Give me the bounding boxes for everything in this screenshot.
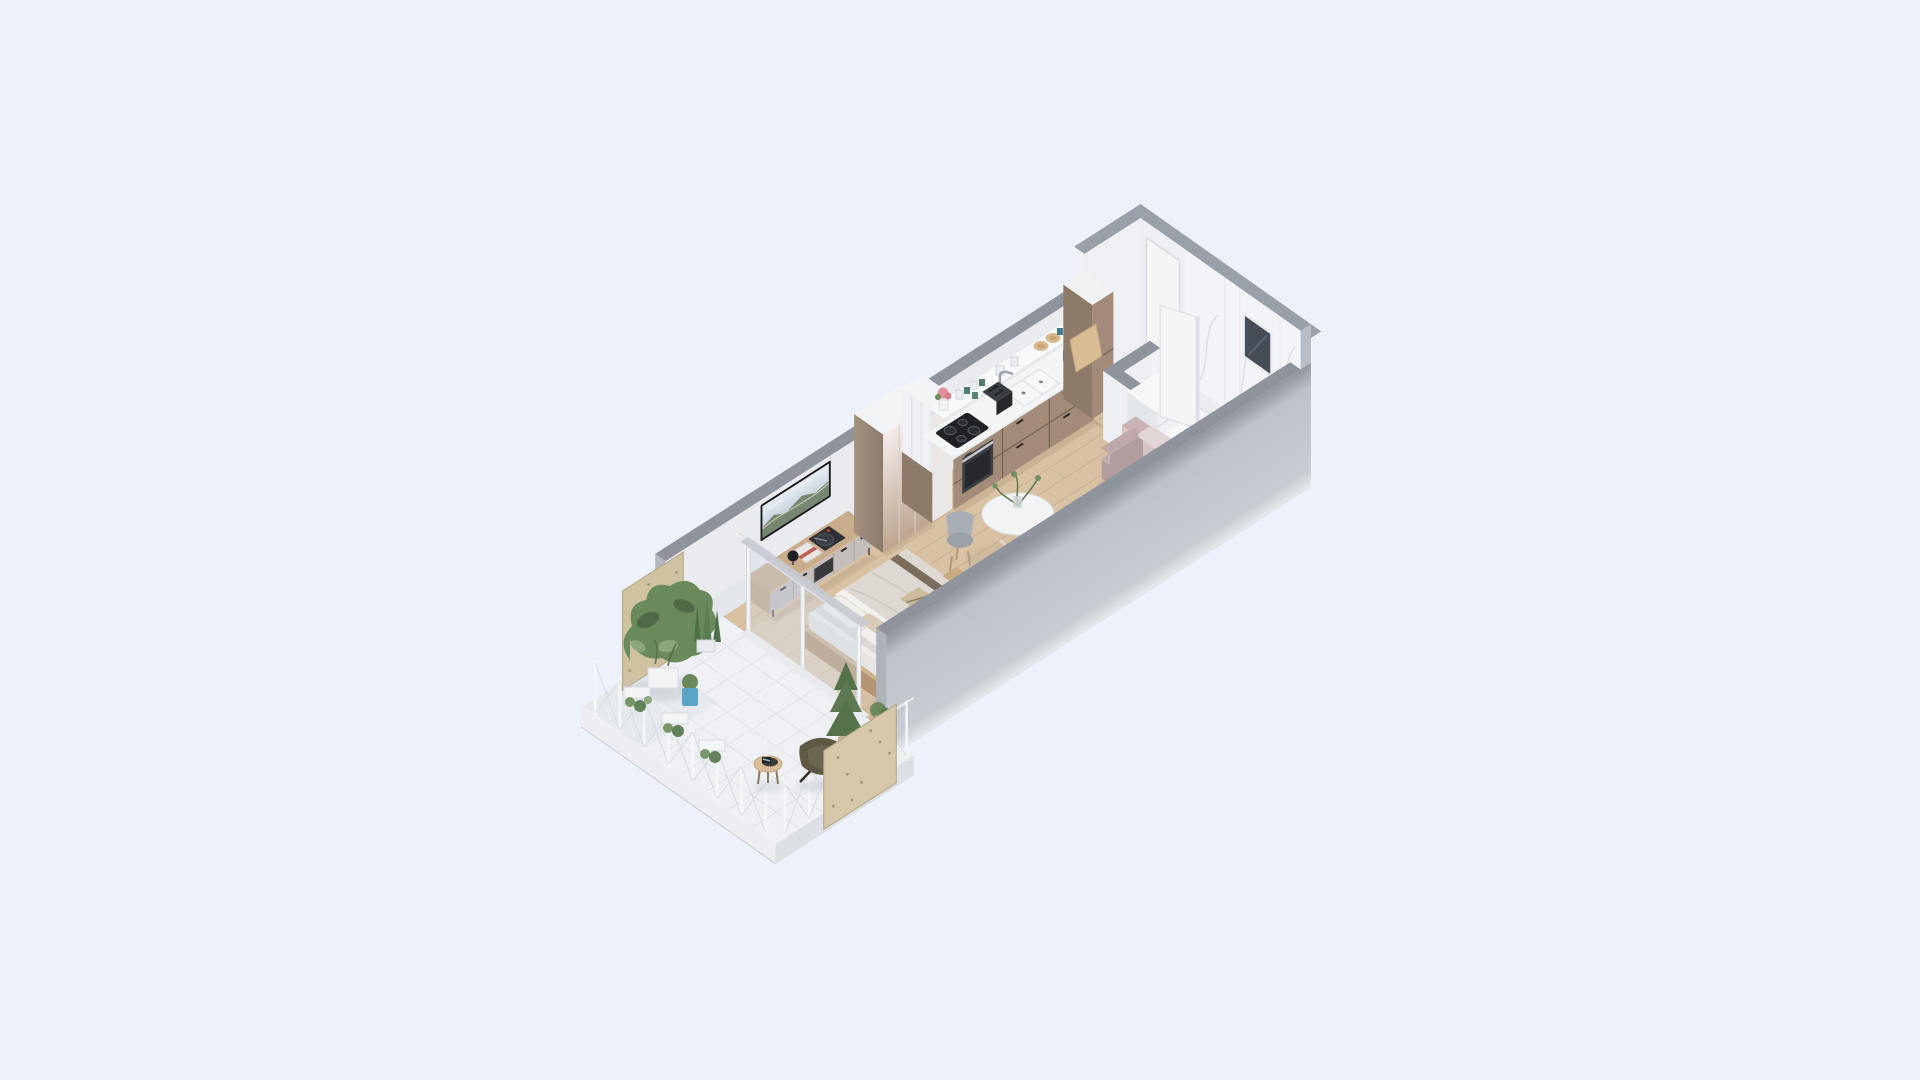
planter-spill-1a [625,697,635,707]
plant-stand-box [648,668,678,688]
planter-box-1 [624,687,650,698]
side-table [754,756,782,784]
snake-plant-pot [697,640,715,652]
planter-spill-1c [644,696,652,704]
open-door-edge [1196,316,1199,428]
planter-box-3 [699,740,725,751]
mug2 [972,392,978,399]
flowers-pink2 [945,393,952,400]
blue-pot-foliage [682,674,698,690]
open-door-panel [1160,305,1196,428]
mug1 [964,387,970,394]
plate1-inner [1037,344,1045,349]
chair1-seat [947,532,973,548]
blue-pot [682,688,698,706]
mug3 [979,379,985,386]
planter-box-2 [662,713,688,724]
planter-spill-2b [672,725,684,737]
vase [1013,496,1022,508]
flower-pot-body [939,400,948,410]
glass4 [1011,357,1018,366]
sphere-speaker [788,551,799,562]
wardrobe-side [854,414,883,553]
flower-leaves [935,394,941,400]
door-frame-post-3 [857,622,861,714]
door-frame-post-1 [747,544,751,636]
planter-spill-1b [634,700,646,712]
leaf2 [1035,475,1041,481]
bathroom-door-open [1160,305,1199,428]
leaf3 [993,484,998,489]
planter-spill-3b [709,751,721,763]
blue-pot-plant [682,674,698,706]
planter-spill-3a [700,749,710,759]
scene-canvas [0,0,1920,1080]
plate2-inner [1049,336,1057,341]
door-frame-post-2 [801,582,805,674]
teal-cup [1057,328,1063,335]
apartment-render [0,0,1920,1080]
leaf1 [1011,471,1017,477]
glass1 [956,390,963,399]
glass2 [971,381,977,389]
planter-spill-2a [663,723,673,733]
